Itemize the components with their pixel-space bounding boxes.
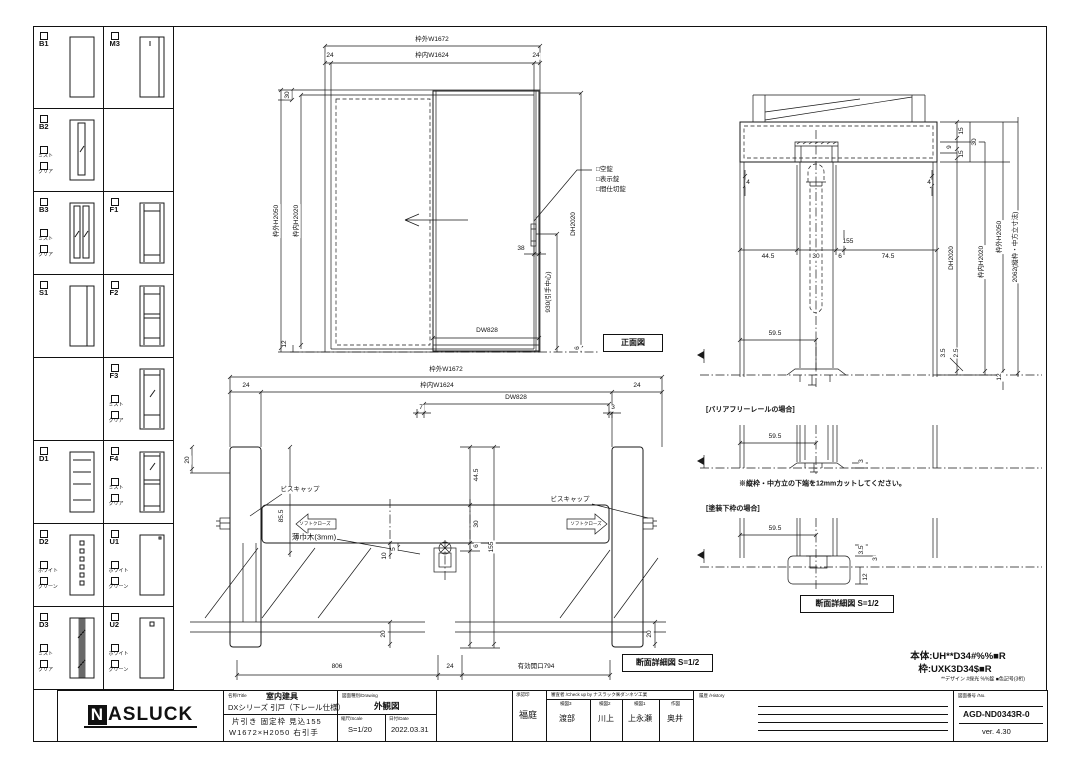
dim-label: 38 bbox=[516, 246, 525, 253]
door-type-code: D1 bbox=[39, 455, 49, 463]
dim-label: 20 bbox=[381, 629, 388, 638]
door-type-code: F1 bbox=[110, 206, 119, 214]
door-type-table: B1 M3 B2 ミスト クリア B3 ミスト クリア bbox=[33, 26, 174, 690]
dim-label: 155 bbox=[842, 239, 855, 246]
dim-label: 6 bbox=[474, 543, 481, 549]
glass-option-label: ミスト bbox=[109, 486, 124, 491]
door-type-cell-d3: D3 ミスト クリア bbox=[33, 607, 104, 690]
dim-label-frame-outer-height: 枠外H2050 bbox=[997, 220, 1004, 254]
door-type-code: S1 bbox=[39, 289, 48, 297]
dim-label: 20 bbox=[185, 455, 192, 464]
dim-label: 12 bbox=[997, 372, 1004, 381]
dim-label: 2.5 bbox=[954, 347, 961, 358]
dim-label: 24 bbox=[531, 53, 540, 60]
dim-label: 30 bbox=[972, 137, 979, 146]
door-icon-f3 bbox=[138, 367, 166, 431]
dim-label: 59.5 bbox=[768, 526, 783, 533]
product-series: DXシリーズ 引戸（下レール仕様） bbox=[228, 704, 345, 712]
door-type-cell-d1: D1 bbox=[33, 441, 104, 524]
dim-label: 3 bbox=[610, 405, 616, 412]
blank-cell bbox=[436, 691, 513, 741]
screw-cap-label: ビスキャップ bbox=[550, 497, 591, 504]
dim-label-clear-opening: 有効開口794 bbox=[517, 664, 556, 671]
glass-option-label: ホワイト bbox=[109, 652, 129, 657]
checker-role: 作図 bbox=[671, 702, 680, 707]
checker-role: 検図1 bbox=[634, 702, 646, 707]
cut-note: ※縦枠・中方立の下端を12mmカットしてください。 bbox=[738, 481, 907, 488]
checker-name: 川上 bbox=[598, 715, 614, 723]
soft-close-label: ソフトクローズ bbox=[298, 522, 331, 527]
door-icon-b2 bbox=[68, 118, 96, 182]
dim-label-frame-outer-width: 枠外W1672 bbox=[428, 367, 464, 374]
glass-option-label: クリア bbox=[109, 502, 124, 507]
approver-name: 福庭 bbox=[519, 711, 537, 720]
dim-label: 155 bbox=[489, 541, 496, 554]
door-type-cell-empty bbox=[33, 358, 104, 441]
door-type-code: D2 bbox=[39, 538, 49, 546]
dim-label: 85.5 bbox=[279, 509, 286, 524]
dim-label: 44.5 bbox=[474, 468, 481, 483]
dim-label: 12 bbox=[282, 339, 289, 348]
product-spec-line2: W1672×H2050 右引手 bbox=[229, 729, 319, 737]
dim-label-door-width: DW828 bbox=[475, 328, 499, 335]
dim-label: 74.5 bbox=[881, 254, 896, 261]
dim-label: 5 bbox=[391, 546, 398, 552]
dim-label-frame-outer-height: 枠外H2050 bbox=[274, 204, 281, 238]
glass-option-label: ミスト bbox=[109, 403, 124, 408]
door-type-code: B2 bbox=[39, 123, 49, 131]
dim-label: 6 bbox=[575, 345, 582, 351]
door-type-cell-f3: F3 ミスト クリア bbox=[104, 358, 175, 441]
glass-option-label: クリア bbox=[38, 253, 53, 258]
drawing-sheet: B1 M3 B2 ミスト クリア B3 ミスト クリア bbox=[0, 0, 1080, 764]
baseboard-label: 薄巾木(3mm) bbox=[291, 533, 337, 541]
dim-label: 7 bbox=[418, 405, 424, 412]
door-type-cell-d2: D2 ホワイト グリーン bbox=[33, 524, 104, 607]
dim-label: 15 bbox=[959, 149, 966, 158]
checker-name: 奥井 bbox=[667, 715, 683, 723]
dim-label: 59.5 bbox=[768, 331, 783, 338]
glass-option-label: グリーン bbox=[109, 585, 129, 590]
drawing-number-cell: 図面番号 /No. AGD-ND0343R-0 ver. 4.30 bbox=[953, 691, 1048, 741]
door-icon-f2 bbox=[138, 284, 166, 348]
door-icon-f4 bbox=[138, 450, 166, 514]
screw-cap-label: ビスキャップ bbox=[280, 487, 321, 494]
lock-option-label: □空錠 bbox=[595, 167, 614, 174]
spec-legend: **デザイン #採光 %%錠 ■色記号(3桁) bbox=[941, 676, 1025, 683]
dim-label-stile-length: 2062(縦枠・中方立寸法) bbox=[1013, 211, 1020, 284]
scale-value: S=1/20 bbox=[348, 726, 372, 734]
dim-label-frame-outer-width: 枠外W1672 bbox=[414, 37, 450, 44]
sheet-border bbox=[33, 26, 1047, 742]
glass-option-label: ミスト bbox=[38, 154, 53, 159]
checker-role: 検図3 bbox=[560, 702, 572, 707]
door-icon-s1 bbox=[68, 284, 96, 348]
dim-label: 12 bbox=[863, 572, 870, 581]
logo-n-icon: N bbox=[88, 705, 107, 725]
door-icon-d2 bbox=[68, 533, 96, 597]
dim-label: 4 bbox=[745, 180, 751, 187]
history-header: 履歴 /History bbox=[699, 694, 725, 699]
door-type-cell-f1: F1 bbox=[104, 192, 175, 275]
door-type-code: D3 bbox=[39, 621, 49, 629]
check-header: 審査者 /Check up by ナスラック㈱ダンネツ工業 bbox=[551, 693, 647, 698]
view-title-plan-section: 断面詳細図 S=1/2 bbox=[622, 654, 713, 672]
dim-label-frame-inner-height: 枠内H2020 bbox=[294, 204, 301, 238]
detail-title-painted-sill: [塗装下枠の場合] bbox=[705, 506, 761, 513]
door-icon-b1 bbox=[68, 35, 96, 99]
company-logo: NASLUCK bbox=[58, 691, 223, 741]
dim-label: 30 bbox=[474, 519, 481, 528]
door-type-code: M3 bbox=[110, 40, 120, 48]
checkers-cell: 審査者 /Check up by ナスラック㈱ダンネツ工業 検図3 渡部 検図2… bbox=[546, 691, 694, 741]
dim-label: 806 bbox=[331, 664, 344, 671]
lock-option-label: □間仕切錠 bbox=[595, 187, 627, 194]
dim-label: 3 bbox=[873, 556, 880, 562]
door-icon-b3 bbox=[68, 201, 96, 265]
detail-title-barrier-free: [バリアフリーレールの場合] bbox=[705, 407, 796, 414]
glass-option-label: クリア bbox=[38, 170, 53, 175]
dim-label: 24 bbox=[632, 383, 641, 390]
door-icon-d1 bbox=[68, 450, 96, 514]
dim-label: 30 bbox=[811, 254, 820, 261]
door-type-code: F2 bbox=[110, 289, 119, 297]
checker-role: 検図2 bbox=[599, 702, 611, 707]
history-cell: 履歴 /History bbox=[693, 691, 954, 741]
view-title-vertical-section: 断面詳細図 S=1/2 bbox=[800, 595, 894, 613]
door-type-code: F4 bbox=[110, 455, 119, 463]
drawing-type-header: 図面種別/Drawing bbox=[342, 694, 378, 699]
glass-option-label: ホワイト bbox=[109, 569, 129, 574]
checker-name: 渡部 bbox=[559, 715, 575, 723]
door-type-cell-s1: S1 bbox=[33, 275, 104, 358]
dim-label-frame-inner-width: 枠内W1624 bbox=[419, 383, 455, 390]
dim-label: 9 bbox=[947, 144, 954, 150]
approval-header: 承認印 bbox=[516, 693, 530, 698]
soft-close-label: ソフトクローズ bbox=[569, 522, 602, 527]
glass-option-label: クリア bbox=[38, 668, 53, 673]
door-icon-m3 bbox=[138, 35, 166, 99]
drawing-type: 外観図 bbox=[374, 702, 400, 711]
dim-label: 3 bbox=[859, 458, 866, 464]
date-value: 2022.03.31 bbox=[391, 726, 429, 734]
door-icon-u2 bbox=[138, 616, 166, 680]
door-type-code: B3 bbox=[39, 206, 49, 214]
dim-label: 4 bbox=[926, 180, 932, 187]
dim-label-frame-inner-width: 枠内W1624 bbox=[414, 53, 450, 60]
title-cell: 名称/Title 室内建具 DXシリーズ 引戸（下レール仕様） 片引き 固定枠 … bbox=[223, 691, 338, 741]
door-icon-f1 bbox=[138, 201, 166, 265]
drawing-number-header: 図面番号 /No. bbox=[958, 694, 986, 699]
view-title-front: 正面図 bbox=[603, 334, 663, 352]
dim-label-frame-inner-height: 枠内H2020 bbox=[979, 245, 986, 279]
door-type-cell-empty bbox=[104, 109, 175, 192]
glass-option-label: ミスト bbox=[38, 237, 53, 242]
date-header: 日付/Date bbox=[389, 717, 409, 722]
approval-cell: 承認印 福庭 bbox=[512, 691, 547, 741]
checker-name: 上永瀬 bbox=[628, 715, 652, 723]
glass-option-label: グリーン bbox=[38, 585, 58, 590]
dim-label: 30 bbox=[285, 90, 292, 99]
door-type-cell-f2: F2 bbox=[104, 275, 175, 358]
dim-label: 6 bbox=[837, 254, 843, 261]
lock-option-label: □表示錠 bbox=[595, 177, 620, 184]
spec-frame-code: 枠:UXK3D34$■R bbox=[918, 661, 991, 675]
glass-option-label: クリア bbox=[109, 419, 124, 424]
dim-label: 24 bbox=[241, 383, 250, 390]
dim-label-door-height: DH2020 bbox=[571, 211, 578, 237]
drawing-type-cell: 図面種別/Drawing 外観図 縮尺/Scale S=1/20 日付/Date… bbox=[337, 691, 437, 741]
door-type-cell-f4: F4 ミスト クリア bbox=[104, 441, 175, 524]
drawing-number: AGD-ND0343R-0 bbox=[963, 710, 1030, 719]
glass-option-label: グリーン bbox=[109, 668, 129, 673]
door-type-code: B1 bbox=[39, 40, 49, 48]
door-type-cell-b3: B3 ミスト クリア bbox=[33, 192, 104, 275]
scale-header: 縮尺/Scale bbox=[341, 717, 363, 722]
dim-label-handle-center: 930(引手中心) bbox=[546, 270, 553, 313]
door-type-cell-b1: B1 bbox=[33, 26, 104, 109]
title-header: 名称/Title bbox=[228, 694, 247, 699]
product-category: 室内建具 bbox=[266, 693, 298, 701]
glass-option-label: ミスト bbox=[38, 652, 53, 657]
door-icon-u1 bbox=[138, 533, 166, 597]
dim-label: 15 bbox=[959, 126, 966, 135]
logo-text: ASLUCK bbox=[108, 704, 193, 726]
dim-label: 20 bbox=[647, 629, 654, 638]
dim-label: 44.5 bbox=[761, 254, 776, 261]
door-type-cell-u1: U1 ホワイト グリーン bbox=[104, 524, 175, 607]
dim-label: 3.5 bbox=[941, 347, 948, 358]
door-type-code: U2 bbox=[110, 621, 120, 629]
spec-body-code: 本体:UH**D34#%%■R bbox=[910, 648, 1005, 662]
dim-label: 24 bbox=[445, 664, 454, 671]
door-type-cell-b2: B2 ミスト クリア bbox=[33, 109, 104, 192]
product-spec-line1: 片引き 固定枠 見込155 bbox=[232, 718, 322, 726]
dim-label: 59.5 bbox=[768, 434, 783, 441]
door-type-code: U1 bbox=[110, 538, 120, 546]
dim-label-door-height: DH2020 bbox=[949, 245, 956, 271]
dim-label: 24 bbox=[325, 53, 334, 60]
dim-label: 3.5 bbox=[859, 544, 866, 555]
title-block: NASLUCK 名称/Title 室内建具 DXシリーズ 引戸（下レール仕様） … bbox=[57, 690, 1048, 742]
drawing-version: ver. 4.30 bbox=[982, 728, 1011, 736]
dim-label-door-width: DW828 bbox=[504, 395, 528, 402]
dim-label: 10 bbox=[382, 551, 389, 560]
door-type-cell-u2: U2 ホワイト グリーン bbox=[104, 607, 175, 690]
glass-option-label: ホワイト bbox=[38, 569, 58, 574]
door-icon-d3 bbox=[68, 616, 96, 680]
door-type-cell-m3: M3 bbox=[104, 26, 175, 109]
door-type-code: F3 bbox=[110, 372, 119, 380]
